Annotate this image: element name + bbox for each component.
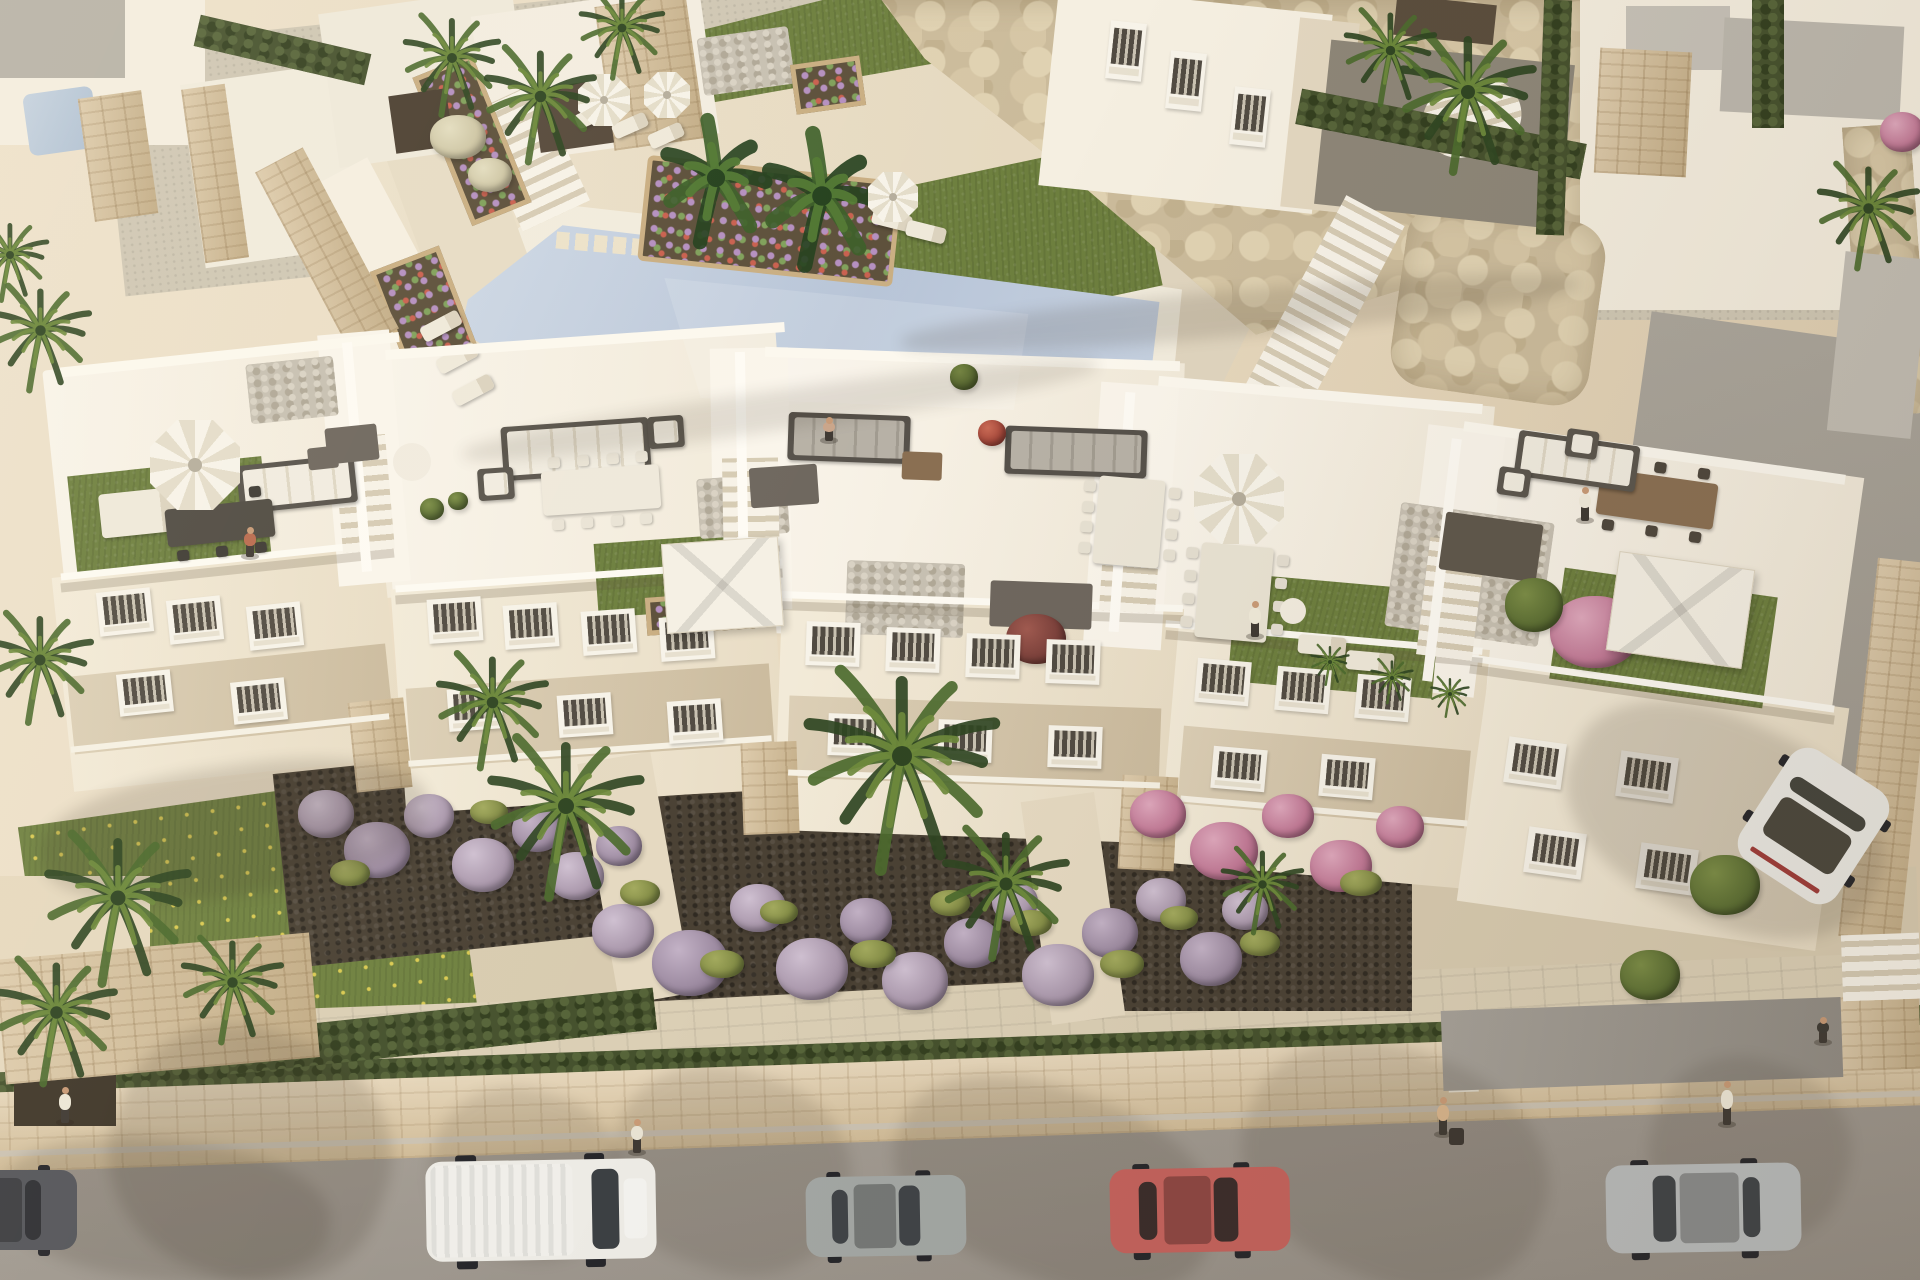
light-overlay bbox=[0, 0, 1920, 1280]
aerial-render-scene bbox=[0, 0, 1920, 1280]
